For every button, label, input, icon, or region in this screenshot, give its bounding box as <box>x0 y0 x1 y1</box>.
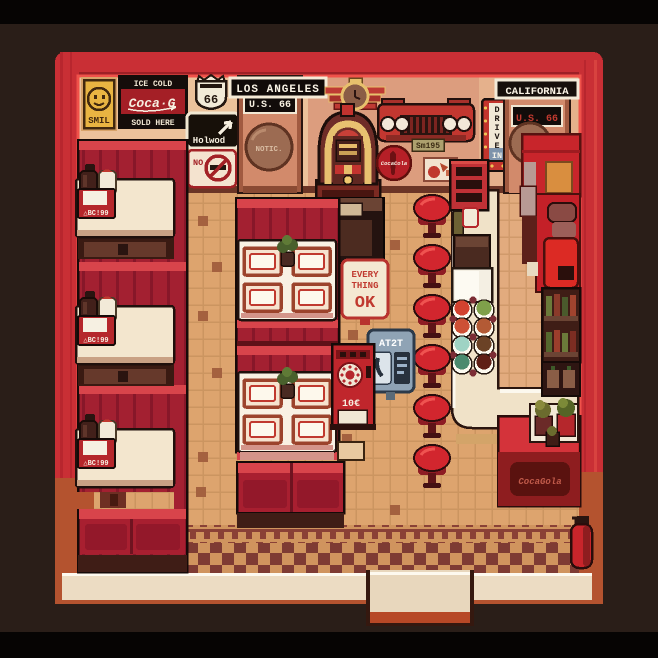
svg-text:SMIL: SMIL <box>88 116 110 126</box>
svg-text:△BC!99: △BC!99 <box>83 210 108 218</box>
svg-text:Holwod: Holwod <box>193 136 225 146</box>
svg-text:SOLD HERE: SOLD HERE <box>131 119 174 128</box>
svg-text:EVERY: EVERY <box>351 270 379 280</box>
svg-text:AT2T: AT2T <box>379 339 403 350</box>
svg-text:IN: IN <box>492 151 502 161</box>
svg-text:OK: OK <box>355 294 376 313</box>
svg-text:NOTIC.: NOTIC. <box>255 146 282 154</box>
svg-text:NO: NO <box>193 158 203 168</box>
svg-text:LOS ANGELES: LOS ANGELES <box>236 84 320 96</box>
svg-text:CALIFORNIA: CALIFORNIA <box>505 86 569 98</box>
svg-text:THING: THING <box>351 281 378 291</box>
svg-text:10€: 10€ <box>342 399 360 410</box>
svg-text:Sm195: Sm195 <box>416 142 440 151</box>
svg-text:CocaCola: CocaCola <box>381 160 407 167</box>
svg-text:U.S. 66: U.S. 66 <box>249 100 291 111</box>
svg-text:CocaGola: CocaGola <box>518 477 561 487</box>
svg-text:△BC!99: △BC!99 <box>83 337 108 345</box>
svg-text:△BC!99: △BC!99 <box>83 460 108 468</box>
svg-text:ICE COLD: ICE COLD <box>134 80 173 89</box>
svg-text:66: 66 <box>204 93 218 107</box>
